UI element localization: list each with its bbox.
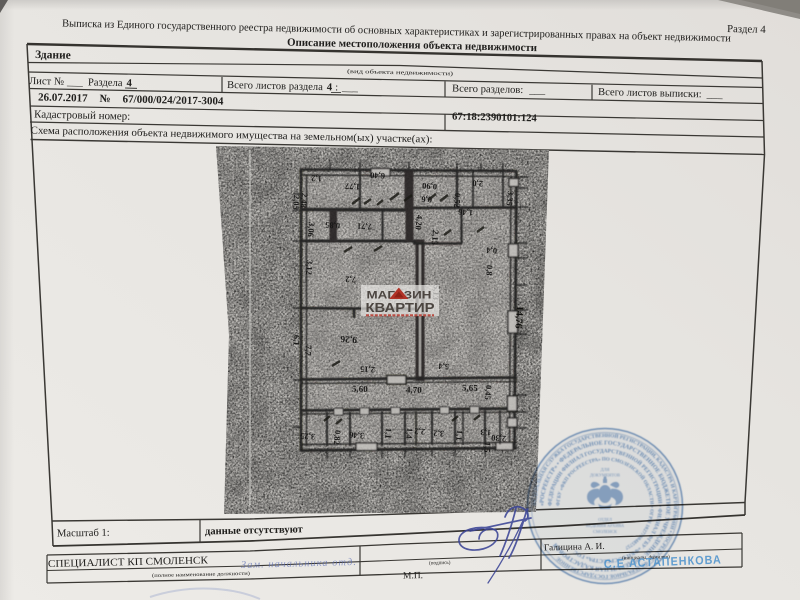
svg-text:0,82: 0,82 xyxy=(332,430,343,446)
svg-text:ОТДЕЛ: ОТДЕЛ xyxy=(598,517,612,522)
svg-text:КВАРТИР: КВАРТИР xyxy=(366,301,435,315)
svg-text:0,4: 0,4 xyxy=(485,245,497,256)
svg-text:Всего разделов:___: Всего разделов:___ xyxy=(452,84,546,97)
svg-text:1,46: 1,46 xyxy=(458,207,474,218)
svg-text:ВЕДЕНИЯ АРХИВА: ВЕДЕНИЯ АРХИВА xyxy=(586,523,625,528)
svg-text:3,25: 3,25 xyxy=(300,431,316,442)
svg-text:(подпись): (подпись) xyxy=(429,559,451,567)
svg-text:0,8: 0,8 xyxy=(484,265,495,276)
svg-text:Здание: Здание xyxy=(35,49,71,62)
svg-text:2,05: 2,05 xyxy=(291,195,302,211)
svg-text:2,2: 2,2 xyxy=(414,426,425,437)
svg-text:ДОКУМЕНТОВ: ДОКУМЕНТОВ xyxy=(590,473,620,478)
svg-text:1,2: 1,2 xyxy=(311,173,322,184)
svg-text:9,26: 9,26 xyxy=(340,333,358,344)
svg-text:1,3: 1,3 xyxy=(480,427,491,438)
svg-text:3,46: 3,46 xyxy=(349,430,365,441)
svg-text:1,77: 1,77 xyxy=(344,181,360,192)
svg-text:0,85: 0,85 xyxy=(325,220,341,231)
svg-text:данные отсутствуют: данные отсутствуют xyxy=(205,524,304,537)
svg-text:3,2: 3,2 xyxy=(433,428,444,439)
svg-text:ДЛЯ: ДЛЯ xyxy=(601,467,610,472)
svg-text:2,15: 2,15 xyxy=(360,364,375,375)
svg-text:0,45: 0,45 xyxy=(483,385,494,401)
svg-text:4,70: 4,70 xyxy=(406,385,423,396)
svg-text:3,12: 3,12 xyxy=(304,260,315,276)
svg-text:1,4: 1,4 xyxy=(404,428,415,440)
svg-text:М.П.: М.П. xyxy=(403,571,423,581)
svg-text:2,15: 2,15 xyxy=(430,230,441,246)
svg-text:6,40: 6,40 xyxy=(370,170,385,181)
svg-text:2,0: 2,0 xyxy=(472,178,483,189)
svg-text:Раздел 4: Раздел 4 xyxy=(727,23,766,36)
svg-text:4,20: 4,20 xyxy=(413,214,425,230)
svg-text:5,60: 5,60 xyxy=(352,384,369,395)
svg-text:0,52: 0,52 xyxy=(452,193,463,209)
svg-text:1,1: 1,1 xyxy=(383,428,394,439)
svg-text:0,90: 0,90 xyxy=(422,181,438,192)
svg-text:7,2: 7,2 xyxy=(345,274,356,285)
svg-text:Кадастровый номер:: Кадастровый номер: xyxy=(34,109,130,123)
svg-text:Масштаб 1:: Масштаб 1: xyxy=(57,528,110,540)
svg-text:Лист №___Раздела4: Лист №___Раздела4 xyxy=(29,76,133,89)
svg-text:67:18:2390101:124: 67:18:2390101:124 xyxy=(452,112,538,125)
svg-text:7,71: 7,71 xyxy=(357,221,372,232)
svg-text:СМОЛЕНСК: СМОЛЕНСК xyxy=(593,529,617,534)
svg-text:1,5: 1,5 xyxy=(482,442,493,453)
svg-text:3,35: 3,35 xyxy=(504,190,516,206)
svg-text:6,1: 6,1 xyxy=(291,335,302,346)
svg-text:14,76: 14,76 xyxy=(512,306,525,329)
svg-text:0,6: 0,6 xyxy=(421,194,432,205)
svg-text:1,1: 1,1 xyxy=(454,430,465,441)
svg-text:5,65: 5,65 xyxy=(462,383,479,394)
svg-text:5,4: 5,4 xyxy=(437,361,449,372)
svg-text:3,06: 3,06 xyxy=(306,222,317,238)
svg-text:7,7: 7,7 xyxy=(303,345,314,357)
